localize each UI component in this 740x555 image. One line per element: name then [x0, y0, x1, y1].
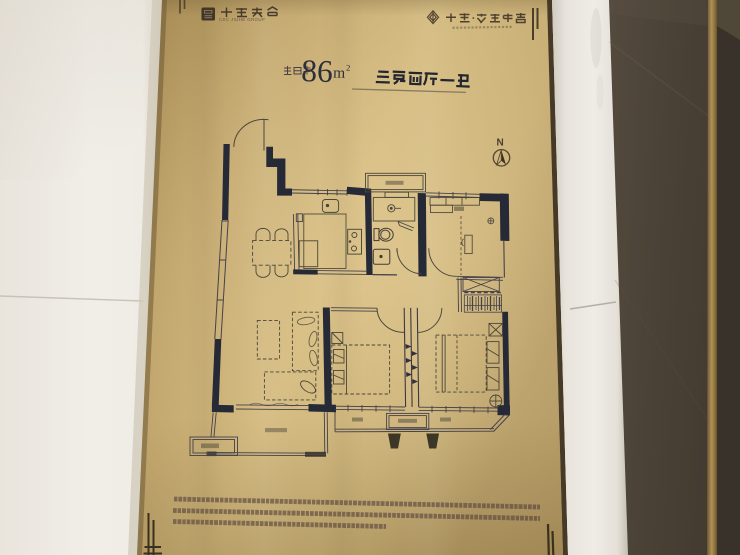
svg-text:2: 2	[346, 63, 351, 73]
svg-text:N: N	[497, 138, 504, 149]
svg-text:m: m	[333, 65, 346, 82]
svg-text:CSC JIUHE GROUP: CSC JIUHE GROUP	[219, 17, 265, 22]
svg-text:86: 86	[301, 53, 334, 89]
